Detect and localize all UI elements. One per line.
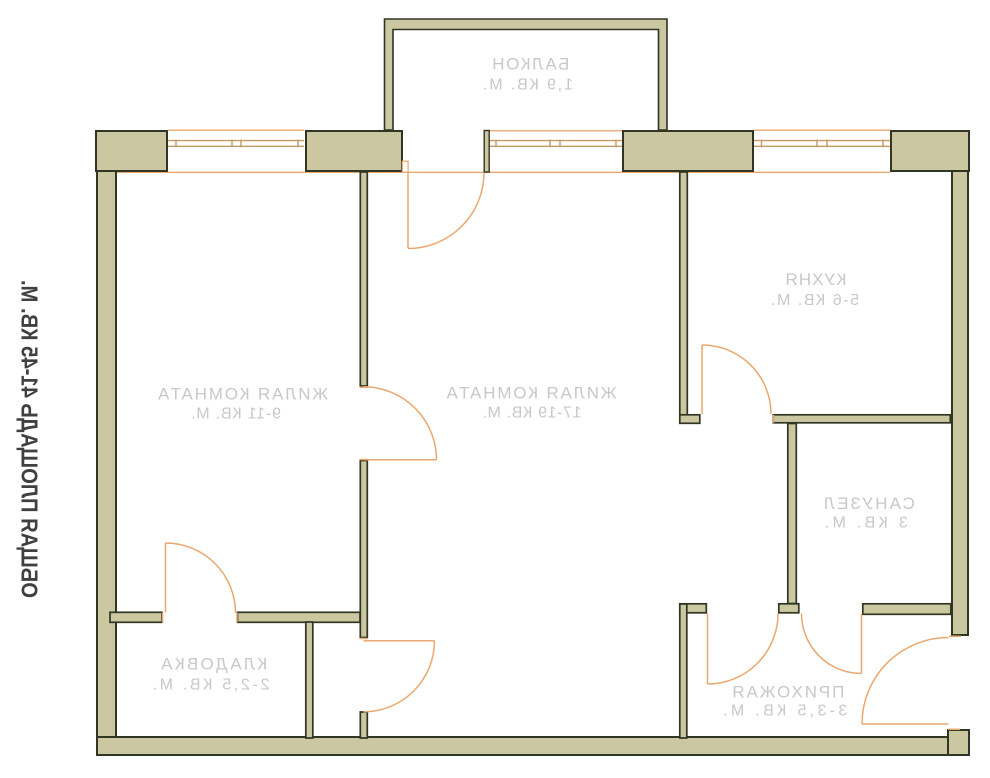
svg-text:1,9 КВ. М.: 1,9 КВ. М. xyxy=(483,77,573,94)
svg-text:БАЛКОН: БАЛКОН xyxy=(492,55,569,74)
svg-text:17-19 КВ. М.: 17-19 КВ. М. xyxy=(483,405,582,422)
svg-text:3 КВ. М.: 3 КВ. М. xyxy=(825,515,908,532)
svg-text:ЖИЛАЯ КОМНАТА: ЖИЛАЯ КОМНАТА xyxy=(157,385,328,404)
svg-text:5-6 КВ. М.: 5-6 КВ. М. xyxy=(771,292,859,309)
svg-text:САНУЗЕЛ: САНУЗЕЛ xyxy=(824,494,915,513)
svg-text:КУХНЯ: КУХНЯ xyxy=(786,270,847,289)
svg-text:ОБЩАЯ ПЛОЩАДЬ 41-45 КВ. М.: ОБЩАЯ ПЛОЩАДЬ 41-45 КВ. М. xyxy=(17,280,43,598)
svg-text:ПРИХОЖАЯ: ПРИХОЖАЯ xyxy=(732,682,844,701)
svg-text:ЖИЛАЯ КОМНАТА: ЖИЛАЯ КОМНАТА xyxy=(446,384,617,403)
svg-text:КЛАДОВКА: КЛАДОВКА xyxy=(161,655,268,674)
svg-text:9-11 КВ. М.: 9-11 КВ. М. xyxy=(191,406,281,423)
